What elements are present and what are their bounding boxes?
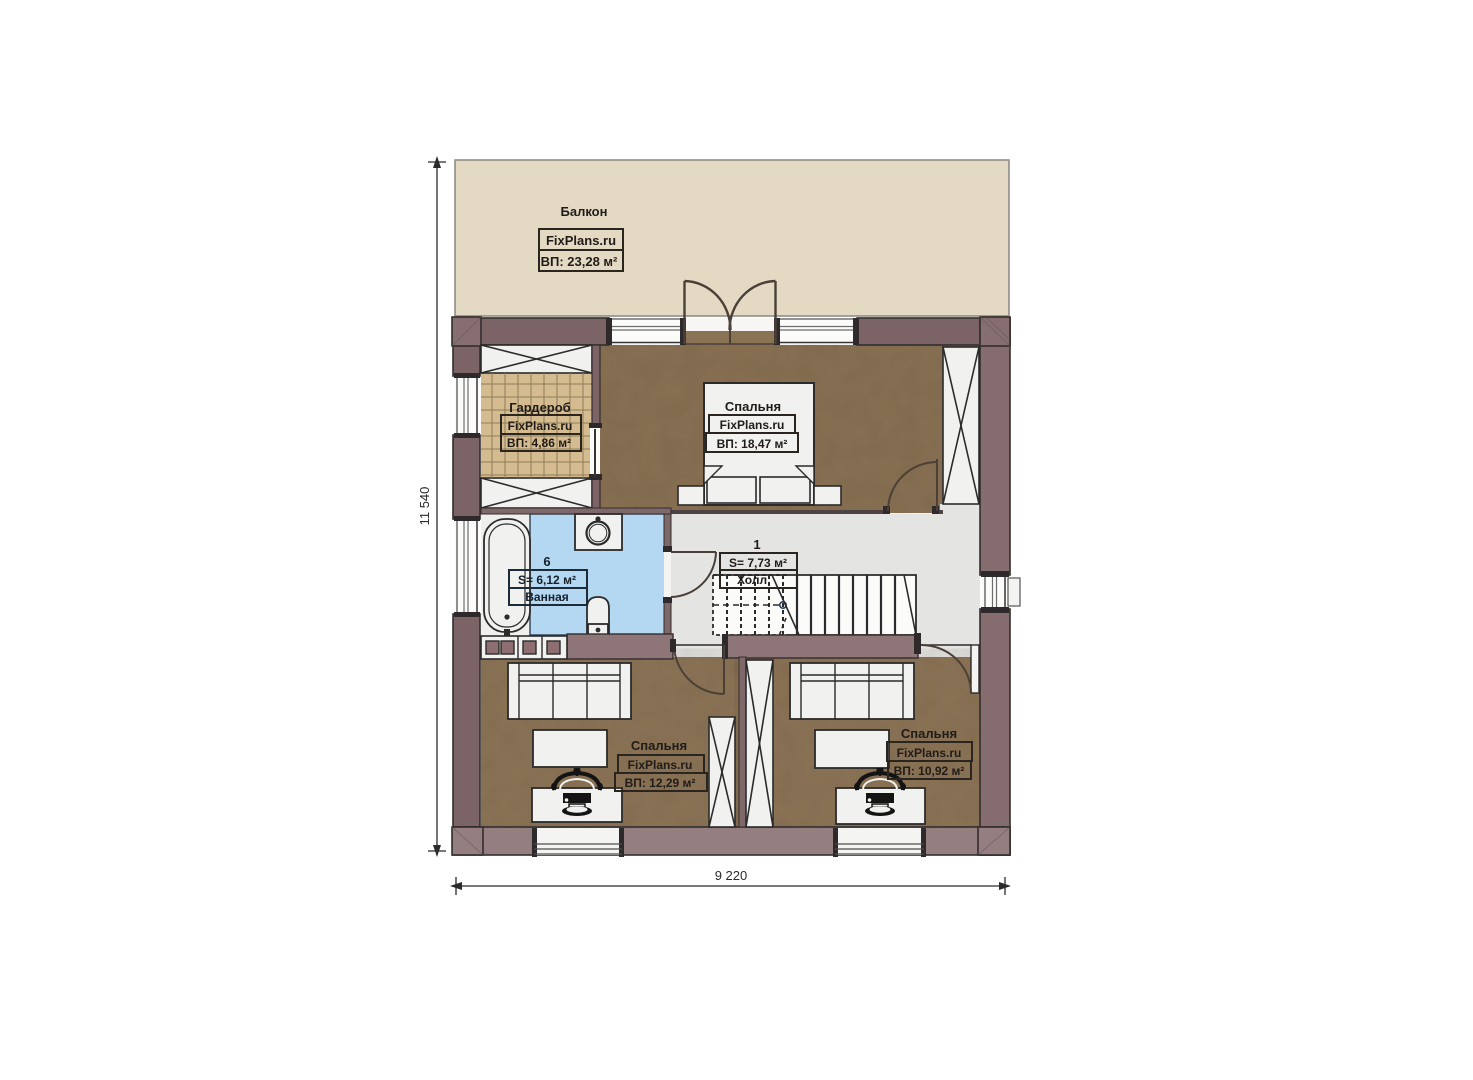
svg-text:Спальня: Спальня (725, 399, 781, 414)
svg-text:ВП: 23,28 м²: ВП: 23,28 м² (541, 254, 618, 269)
svg-text:1: 1 (753, 537, 760, 552)
svg-text:Холл: Холл (737, 573, 767, 587)
svg-text:6: 6 (543, 554, 550, 569)
svg-text:ВП: 12,29 м²: ВП: 12,29 м² (625, 776, 696, 790)
svg-text:FixPlans.ru: FixPlans.ru (508, 419, 573, 433)
svg-text:S= 6,12 м²: S= 6,12 м² (518, 573, 576, 587)
svg-text:Спальня: Спальня (631, 738, 687, 753)
svg-text:ВП: 18,47 м²: ВП: 18,47 м² (717, 437, 788, 451)
svg-text:FixPlans.ru: FixPlans.ru (546, 233, 616, 248)
svg-text:FixPlans.ru: FixPlans.ru (720, 418, 785, 432)
svg-text:ВП: 4,86 м²: ВП: 4,86 м² (507, 436, 571, 450)
svg-text:FixPlans.ru: FixPlans.ru (628, 758, 693, 772)
svg-text:11 540: 11 540 (417, 487, 432, 526)
svg-text:S= 7,73 м²: S= 7,73 м² (729, 556, 787, 570)
svg-text:FixPlans.ru: FixPlans.ru (897, 746, 962, 760)
svg-text:Балкон: Балкон (561, 204, 608, 219)
svg-text:Ванная: Ванная (525, 590, 569, 604)
svg-text:9 220: 9 220 (715, 868, 748, 883)
svg-text:Гардероб: Гардероб (509, 400, 570, 415)
svg-text:Спальня: Спальня (901, 726, 957, 741)
svg-text:ВП: 10,92 м²: ВП: 10,92 м² (894, 764, 965, 778)
